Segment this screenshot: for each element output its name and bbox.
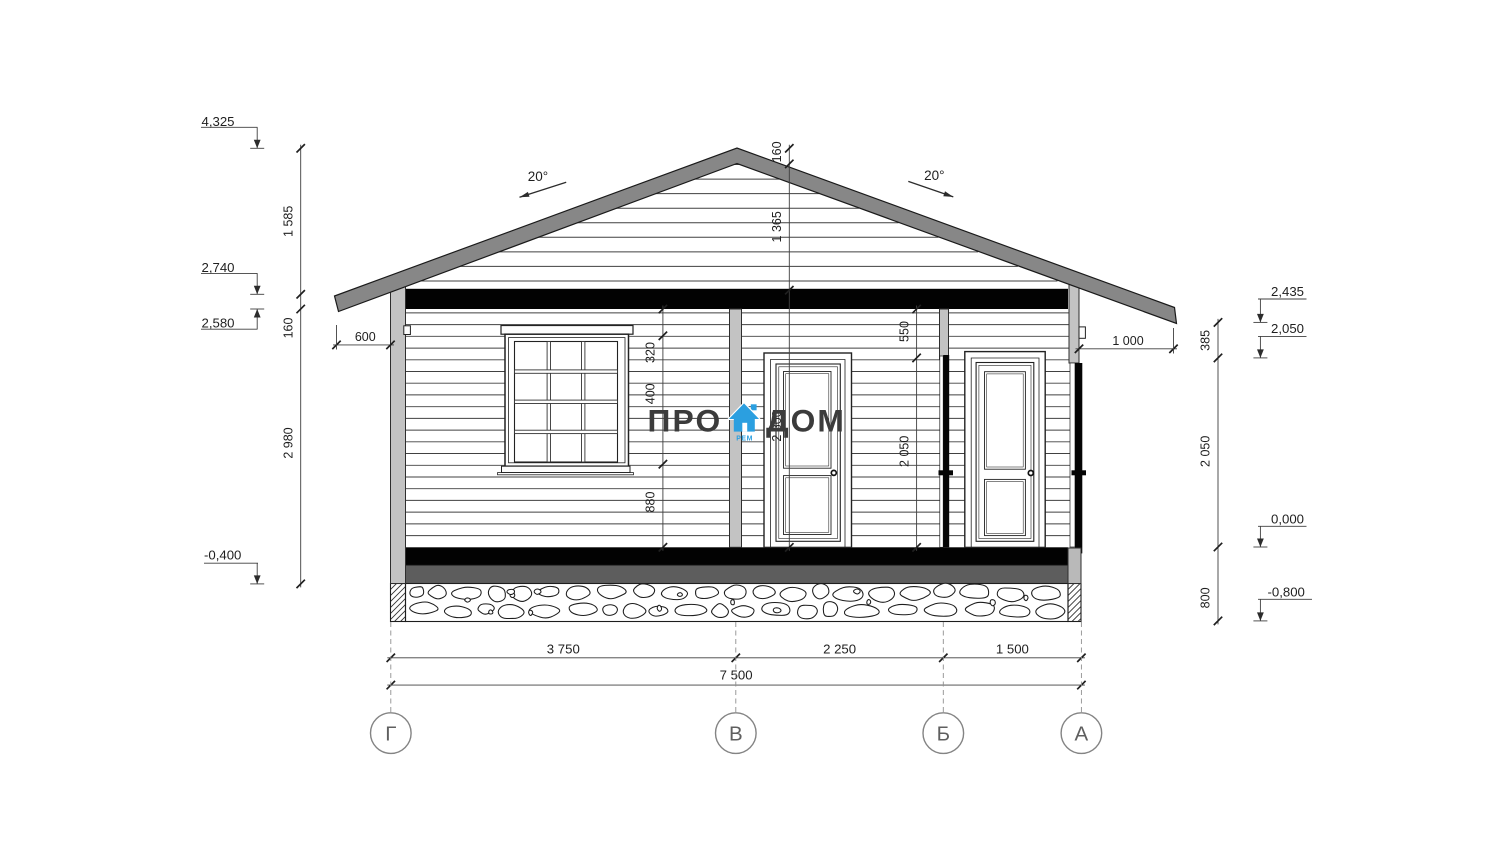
svg-text:400: 400: [644, 383, 658, 404]
svg-text:160: 160: [281, 318, 295, 339]
svg-text:2 250: 2 250: [823, 642, 856, 657]
svg-text:2,740: 2,740: [202, 260, 235, 275]
svg-text:550: 550: [897, 321, 911, 342]
svg-text:-0,800: -0,800: [1268, 585, 1305, 600]
svg-text:1 365: 1 365: [770, 211, 784, 242]
svg-text:1 585: 1 585: [281, 206, 295, 237]
svg-text:160: 160: [770, 141, 784, 162]
svg-text:385: 385: [1199, 330, 1213, 351]
svg-text:800: 800: [1199, 587, 1213, 608]
svg-text:ПРО: ПРО: [648, 403, 723, 439]
svg-text:880: 880: [644, 492, 658, 513]
svg-text:4,325: 4,325: [202, 114, 235, 129]
svg-text:Б: Б: [937, 722, 950, 745]
svg-text:Г: Г: [385, 722, 396, 745]
svg-text:0,000: 0,000: [1271, 512, 1304, 527]
svg-text:1 500: 1 500: [996, 642, 1029, 657]
svg-text:2 050: 2 050: [897, 436, 911, 467]
svg-text:20°: 20°: [528, 169, 548, 184]
svg-text:-0,400: -0,400: [204, 548, 241, 563]
svg-text:2,435: 2,435: [1271, 284, 1304, 299]
svg-text:А: А: [1075, 722, 1089, 745]
svg-text:600: 600: [355, 330, 376, 344]
svg-text:1 000: 1 000: [1112, 334, 1143, 348]
svg-text:2,050: 2,050: [1271, 321, 1304, 336]
svg-text:2 050: 2 050: [1199, 436, 1213, 467]
svg-text:320: 320: [644, 342, 658, 363]
svg-text:3 750: 3 750: [547, 642, 580, 657]
svg-text:20°: 20°: [924, 168, 944, 183]
svg-text:2 980: 2 980: [281, 427, 295, 458]
svg-text:В: В: [729, 722, 743, 745]
svg-text:ДОМ: ДОМ: [766, 403, 846, 439]
svg-text:2,580: 2,580: [202, 316, 235, 331]
svg-text:РЕМ: РЕМ: [736, 436, 753, 443]
